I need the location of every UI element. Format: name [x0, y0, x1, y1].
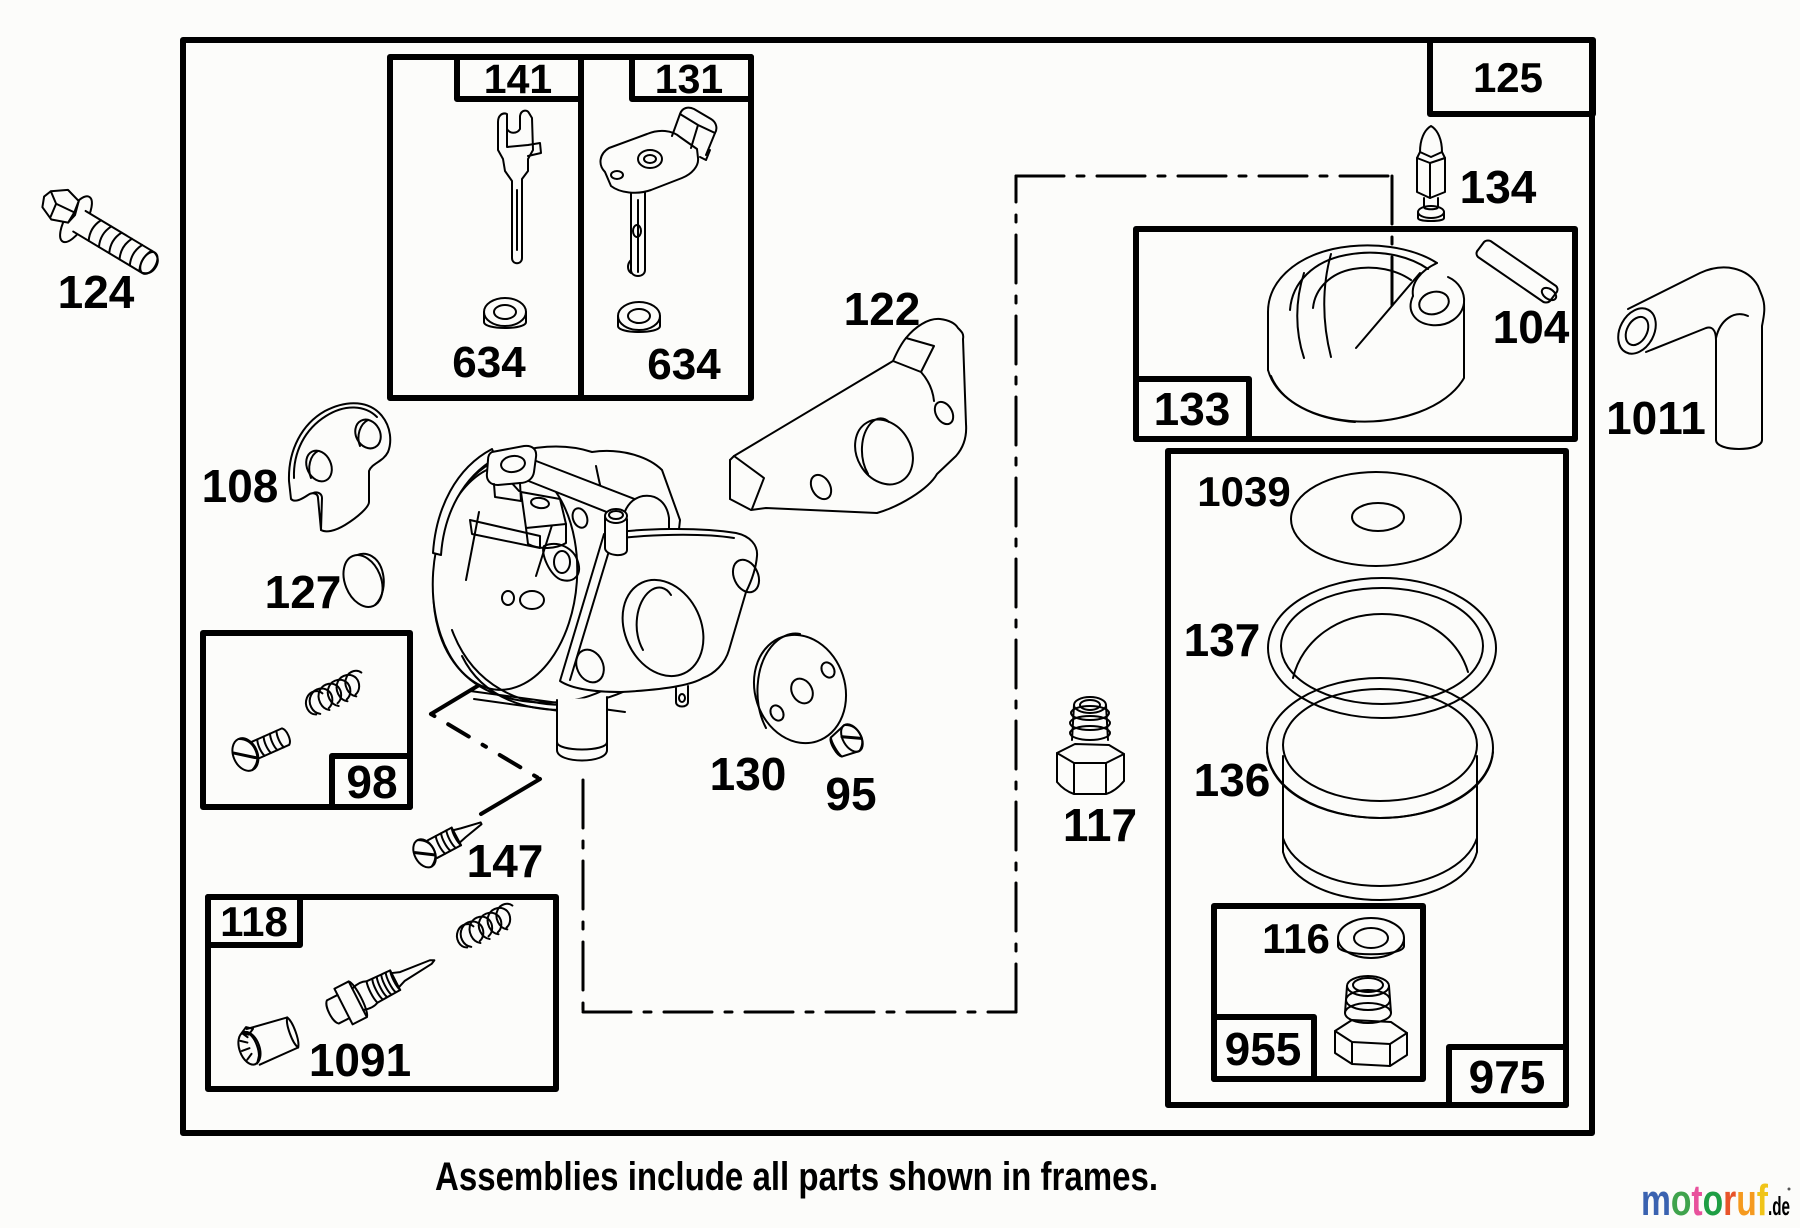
svg-text:95: 95: [825, 768, 876, 820]
svg-text:975: 975: [1469, 1051, 1546, 1103]
svg-text:131: 131: [655, 56, 723, 102]
svg-text:147: 147: [467, 835, 544, 887]
svg-text:Assemblies include all parts s: Assemblies include all parts shown in fr…: [435, 1155, 1158, 1199]
svg-text:116: 116: [1262, 915, 1330, 962]
svg-text:118: 118: [220, 898, 288, 945]
svg-text:127: 127: [265, 566, 342, 618]
svg-text:108: 108: [202, 460, 279, 512]
svg-text:104: 104: [1493, 301, 1570, 353]
svg-text:1011: 1011: [1606, 392, 1706, 444]
svg-text:117: 117: [1063, 799, 1137, 851]
svg-text:134: 134: [1460, 161, 1537, 213]
svg-text:motoruf: motoruf: [1641, 1176, 1768, 1225]
svg-text:634: 634: [452, 338, 526, 387]
svg-text:141: 141: [484, 56, 552, 102]
svg-text:955: 955: [1225, 1023, 1302, 1075]
svg-text:125: 125: [1473, 54, 1543, 101]
svg-text:124: 124: [58, 266, 135, 318]
svg-text:1091: 1091: [309, 1034, 411, 1086]
svg-text:130: 130: [710, 748, 787, 800]
svg-text:98: 98: [346, 756, 397, 808]
svg-text:136: 136: [1194, 754, 1271, 806]
svg-text:634: 634: [647, 340, 721, 389]
svg-text:122: 122: [844, 283, 921, 335]
svg-text:.de: .de: [1768, 1191, 1790, 1221]
svg-text:137: 137: [1184, 614, 1261, 666]
svg-text:1039: 1039: [1197, 468, 1290, 515]
svg-text:133: 133: [1154, 383, 1231, 435]
